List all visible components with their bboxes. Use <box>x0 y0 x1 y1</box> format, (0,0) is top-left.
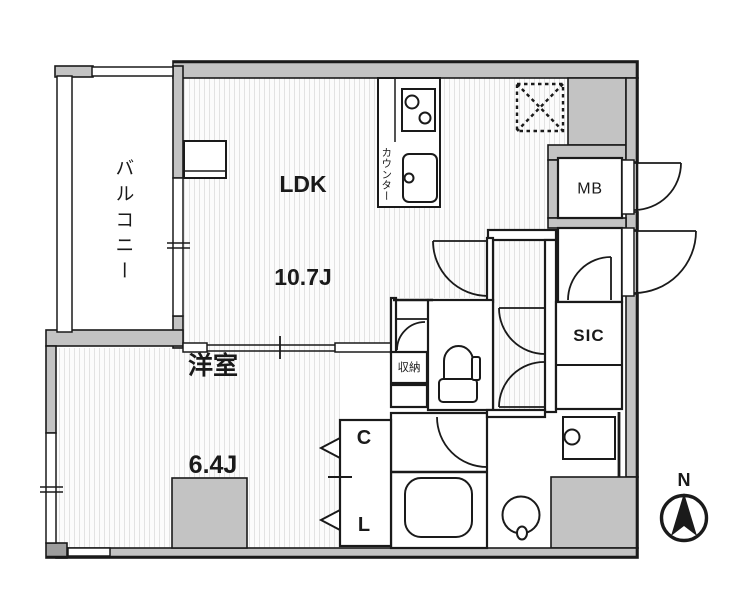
pipe-space-box <box>184 141 226 178</box>
label-north: N <box>678 470 691 492</box>
label-shoe-closet: SIC <box>573 326 604 346</box>
storage-door <box>395 319 427 350</box>
label-meter-box: MB <box>577 179 603 198</box>
label-western-name: 洋室 <box>188 350 238 383</box>
label-closet: C L <box>353 366 375 598</box>
meter-box-door <box>634 163 681 210</box>
label-western-size: 6.4J <box>188 449 238 482</box>
label-ldk-name: LDK <box>274 169 332 200</box>
label-closet-l: L <box>353 511 375 540</box>
label-closet-c: C <box>353 424 375 453</box>
laundry-pan-icon <box>563 417 615 459</box>
label-western-room: 洋室 6.4J <box>188 284 238 548</box>
label-ldk: LDK 10.7J <box>274 107 332 355</box>
washbasin-icon <box>503 497 540 540</box>
label-storage: 収納 <box>398 362 421 376</box>
stove-icon <box>402 89 435 131</box>
north-compass-icon <box>662 493 707 541</box>
entrance-door <box>634 231 696 293</box>
label-ldk-size: 10.7J <box>274 262 332 293</box>
label-kitchen-counter: カウンター <box>380 147 393 202</box>
bathtub-icon <box>405 478 472 537</box>
floorplan: バルコニー LDK 10.7J 洋室 6.4J カウンター MB SIC 収納 … <box>0 0 750 611</box>
label-balcony: バルコニー <box>111 158 134 286</box>
